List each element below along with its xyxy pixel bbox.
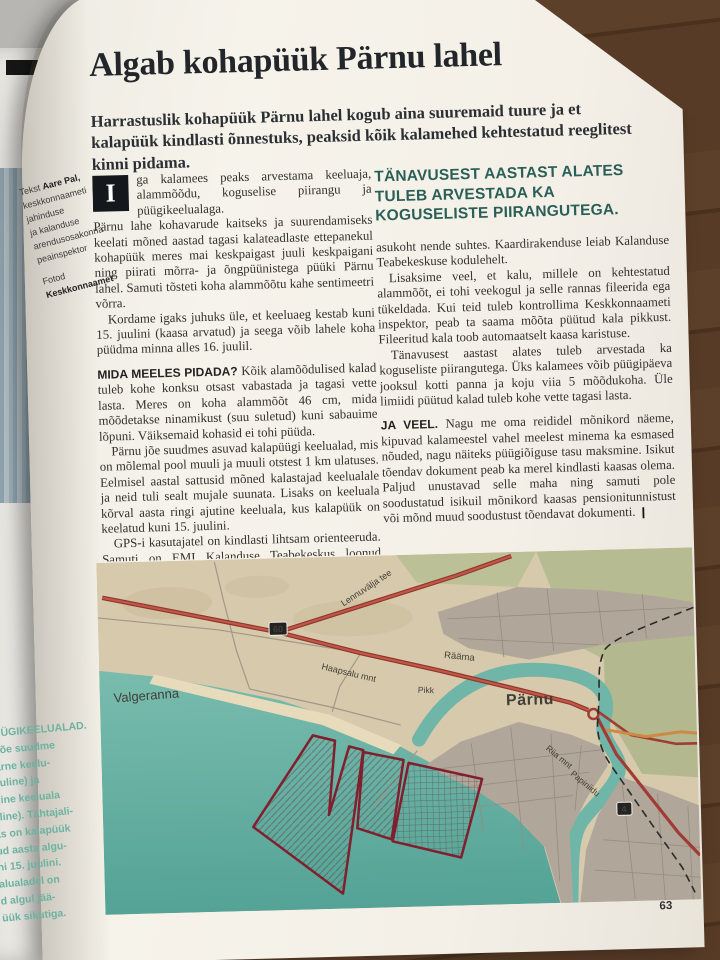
paragraph: Tänavusest aastast alates tuleb arvestad… xyxy=(379,341,674,410)
end-mark: ❙ xyxy=(639,506,649,518)
right-column: TÄNAVUSEST AASTAST ALATES TULEB ARVESTAD… xyxy=(374,160,677,560)
road-shield-60: 60 xyxy=(269,622,287,635)
left-column: Iga kalamees peaks arvestama keeluaja, a… xyxy=(92,167,381,562)
magazine-page: Algab kohapüük Pärnu lahel Harrastuslik … xyxy=(17,0,704,960)
map-svg: Valgeranna Lennuvälja tee Haapsalu mnt R… xyxy=(96,547,701,914)
svg-text:60: 60 xyxy=(273,624,283,634)
paragraph: Iga kalamees peaks arvestama keeluaja, a… xyxy=(92,167,372,221)
paragraph: JA VEEL. Nagu me oma reididel mõnikord n… xyxy=(381,411,677,527)
map-label-parnu: Pärnu xyxy=(506,691,554,709)
section-heading: JA VEEL. xyxy=(381,417,439,432)
magazine-photo: Algab kohapüük Pärnu lahel Harrastuslik … xyxy=(0,0,720,960)
paragraph: Pärnu jõe suudmes asuvad kalapüügi keelu… xyxy=(99,437,380,537)
road-shield-4: 4 xyxy=(617,802,632,815)
paragraph: MIDA MEELES PIDADA? Kõik alamõõdulised k… xyxy=(97,360,378,444)
paragraph: Pärnu lahe kohavarude kaitseks ja suuren… xyxy=(93,213,374,313)
pull-quote: TÄNAVUSEST AASTAST ALATES TULEB ARVESTAD… xyxy=(374,161,637,227)
paragraph: Kordame igaks juhuks üle, et keeluaeg ke… xyxy=(96,305,376,359)
map-label-pikk: Pikk xyxy=(418,685,435,696)
svg-text:4: 4 xyxy=(621,804,626,814)
drop-cap: I xyxy=(92,175,129,212)
page-number: 63 xyxy=(659,900,672,912)
paragraph: Lisaksime veel, et kalu, millele on keht… xyxy=(377,264,672,349)
article-title: Algab kohapüük Pärnu lahel xyxy=(89,35,590,83)
map: Valgeranna Lennuvälja tee Haapsalu mnt R… xyxy=(96,547,701,914)
